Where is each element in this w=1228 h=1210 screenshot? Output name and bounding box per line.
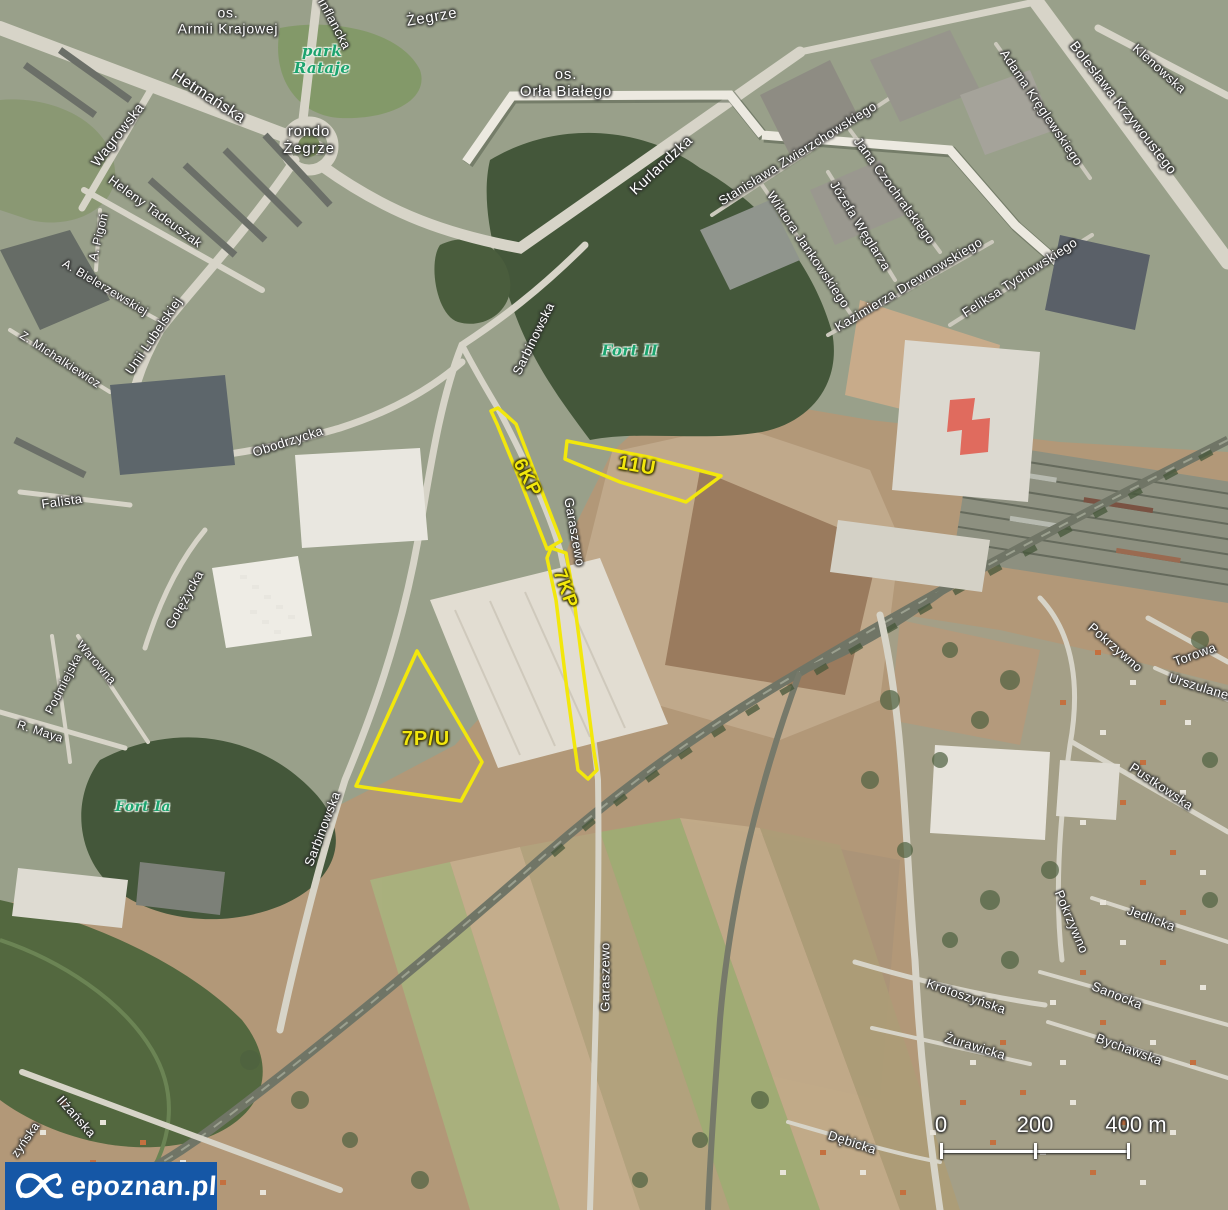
street-label: Torowa [1172, 641, 1219, 670]
street-label: Sarbinowska [510, 300, 558, 377]
street-label: Adama Kręglewskiego [997, 47, 1086, 169]
street-label: Bychawska [1094, 1031, 1164, 1068]
street-label: Jedlicka [1125, 904, 1177, 935]
scale-label: 0 [935, 1112, 947, 1138]
street-label: Dębicka [826, 1128, 878, 1157]
street-label: Józefa Węglarza [827, 179, 894, 274]
street-label: Krotoszyńska [924, 977, 1007, 1018]
street-label: A. Pigoń [87, 212, 112, 262]
street-label: Klenowska [1129, 41, 1188, 96]
street-label: A. Bielerzewskiej [60, 257, 150, 319]
street-label: Urszulanek [1167, 671, 1228, 705]
map-canvas: os. Armii KrajowejŻegrzeos. Orła Białego… [0, 0, 1228, 1210]
street-label: Obodrzycka [251, 424, 325, 461]
street-label: Heleny Tadeuszak [105, 173, 204, 251]
epoznan-logo-text: epoznan.pl [70, 1171, 218, 1202]
district-label: rondo Żegrze [283, 124, 335, 158]
street-label: Kazimierza Drewnowskiego [833, 235, 986, 335]
street-label: Pokrzywno [1051, 888, 1091, 956]
street-label: Pustkowska [1127, 760, 1196, 813]
zone-label: 7P/U [402, 728, 450, 750]
street-label: Z. Michalkiewicz [17, 329, 103, 391]
street-label: Kurlandzka [627, 133, 696, 199]
area-label: Fort II [602, 343, 659, 360]
street-label: Sarbinowska [302, 790, 344, 869]
scale-tick [940, 1143, 943, 1159]
scale-label: 400 m [1105, 1112, 1166, 1138]
scale-label: 200 [1017, 1112, 1054, 1138]
district-label: os. Armii Krajowej [178, 5, 279, 36]
street-label: Pokrzywno [1085, 620, 1145, 675]
street-label: Garaszewo [561, 497, 587, 568]
area-label: Fort Ia [115, 800, 171, 816]
labels-layer: os. Armii KrajowejŻegrzeos. Orła Białego… [0, 0, 1228, 1210]
watermark-banner: epoznan.pl [5, 1162, 217, 1210]
district-label: Żegrze [405, 5, 459, 30]
zone-label: 7KP [548, 567, 582, 612]
zone-label: 6KP [508, 455, 545, 500]
street-label: Garaszewo [599, 942, 614, 1011]
scale-tick [1127, 1143, 1130, 1159]
street-label: Podmiejska [43, 652, 85, 717]
epoznan-logo-icon [15, 1166, 65, 1206]
street-label: Sanocka [1090, 979, 1145, 1012]
street-label: Ilżańska [54, 1093, 99, 1141]
street-label: Wagrowska [88, 100, 147, 170]
street-label: Żurawicka [943, 1031, 1007, 1063]
street-label: Hetmańska [168, 66, 249, 127]
street-label: zyńska [9, 1120, 43, 1160]
scale-tick [1034, 1143, 1037, 1159]
district-label: os. Orła Białego [520, 67, 612, 101]
street-label: Stanisława Zwierzchowskiego [716, 99, 879, 209]
street-label: R. Maya [15, 718, 64, 745]
zone-label: 11U [616, 452, 658, 481]
street-label: Falista [41, 492, 84, 512]
street-label: Gołężycka [163, 568, 207, 631]
